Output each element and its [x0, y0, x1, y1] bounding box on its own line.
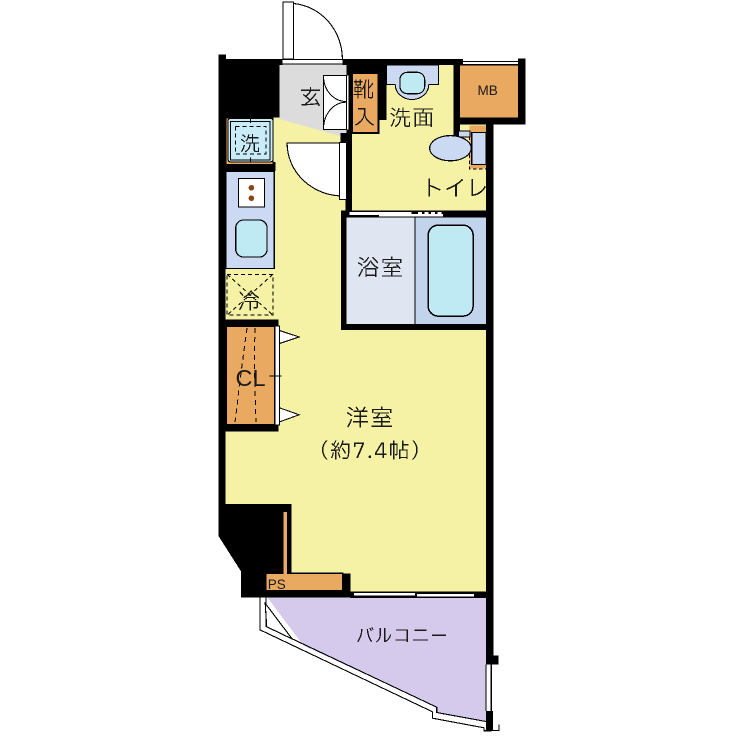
svg-text:MB: MB: [478, 83, 498, 98]
svg-text:CL: CL: [236, 365, 266, 391]
svg-text:PS: PS: [268, 577, 286, 592]
